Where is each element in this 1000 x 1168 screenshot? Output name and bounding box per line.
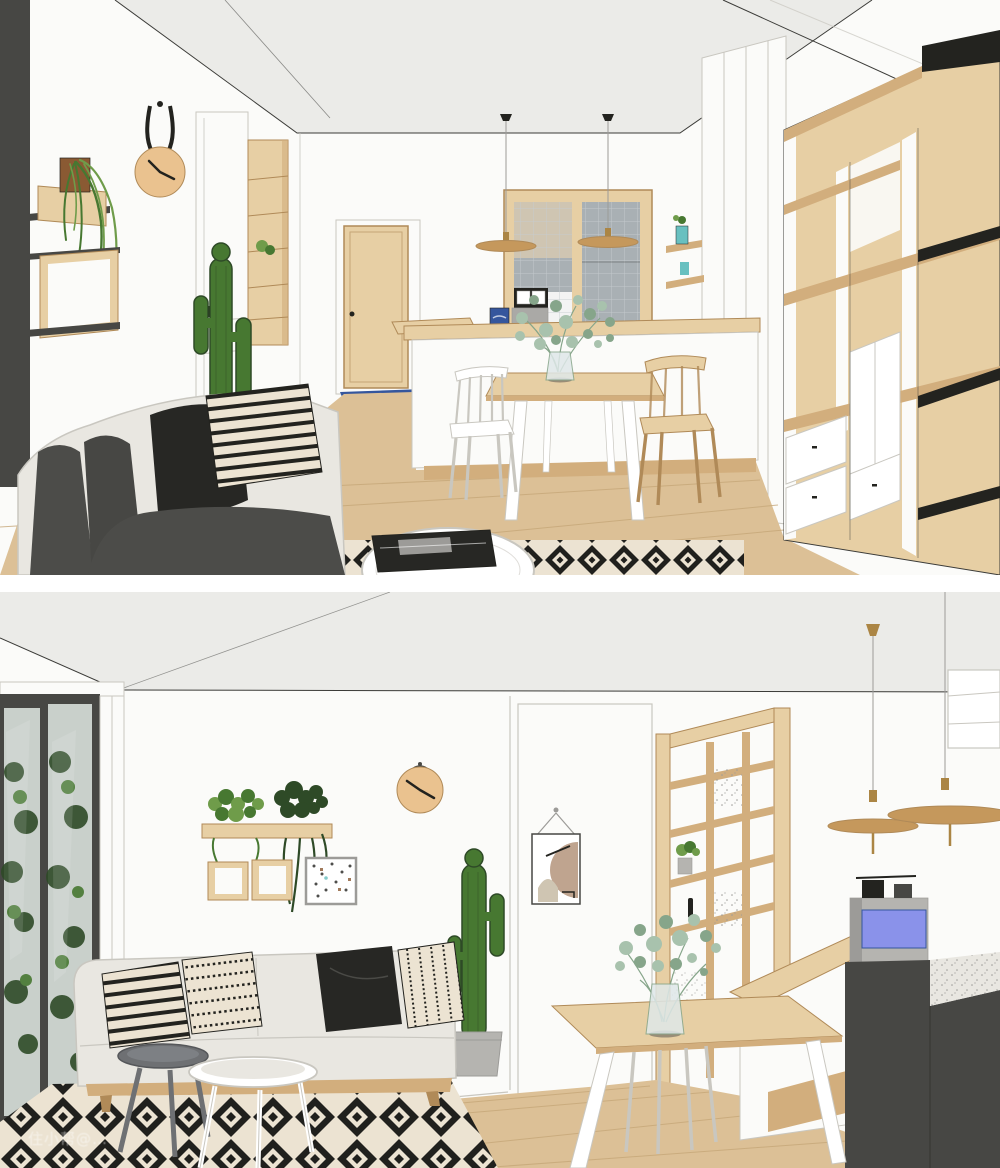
render-bottom-svg: 住小帮@… bbox=[0, 592, 1000, 1168]
botanical-poster bbox=[306, 858, 356, 904]
screenshot-canvas: 住小帮@… bbox=[0, 0, 1000, 1168]
watermark: 住小帮@… bbox=[28, 1130, 108, 1148]
render-top-svg bbox=[0, 0, 1000, 575]
render-bottom: 住小帮@… bbox=[0, 592, 1000, 1168]
concrete-pot bbox=[452, 1032, 502, 1076]
dark-feature-wall bbox=[0, 0, 30, 487]
ceiling bbox=[0, 592, 1000, 692]
oak-niche-shelves bbox=[248, 140, 288, 345]
panel-divider bbox=[0, 575, 1000, 592]
render-top bbox=[0, 0, 1000, 575]
black-pillow bbox=[316, 946, 402, 1032]
wall-cabinet-top-right bbox=[948, 670, 1000, 748]
door-handle bbox=[350, 312, 355, 317]
teal-pot bbox=[676, 226, 688, 244]
wood-shelf bbox=[202, 824, 332, 838]
textured-glass-pane bbox=[714, 768, 742, 806]
textured-glass-pane bbox=[714, 892, 742, 928]
